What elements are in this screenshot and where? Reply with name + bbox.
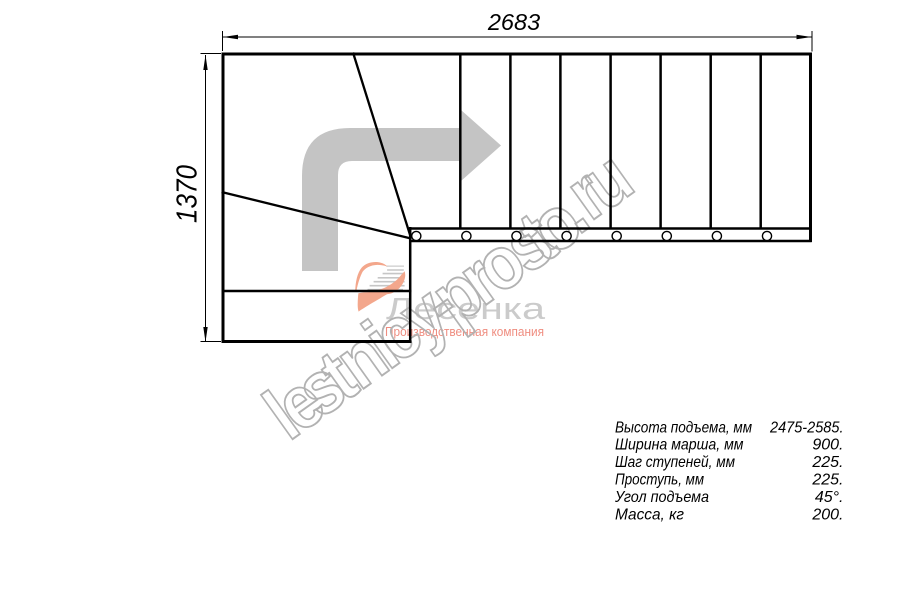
svg-text:Высота подъема, мм: Высота подъема, мм xyxy=(615,419,752,436)
svg-text:45°.: 45°. xyxy=(815,489,844,506)
svg-text:Угол подъема: Угол подъема xyxy=(614,489,709,506)
svg-text:200.: 200. xyxy=(811,506,843,523)
svg-text:225.: 225. xyxy=(811,472,843,489)
svg-text:225.: 225. xyxy=(811,454,843,471)
svg-text:Масса, кг: Масса, кг xyxy=(615,506,684,523)
svg-text:2475-2585.: 2475-2585. xyxy=(769,419,843,436)
svg-text:Шаг ступеней, мм: Шаг ступеней, мм xyxy=(615,454,735,471)
svg-text:Проступь, мм: Проступь, мм xyxy=(615,472,704,489)
svg-text:900.: 900. xyxy=(812,437,843,454)
svg-text:1370: 1370 xyxy=(172,165,204,223)
svg-text:2683: 2683 xyxy=(487,9,540,35)
svg-text:Ширина марша, мм: Ширина марша, мм xyxy=(615,437,744,454)
